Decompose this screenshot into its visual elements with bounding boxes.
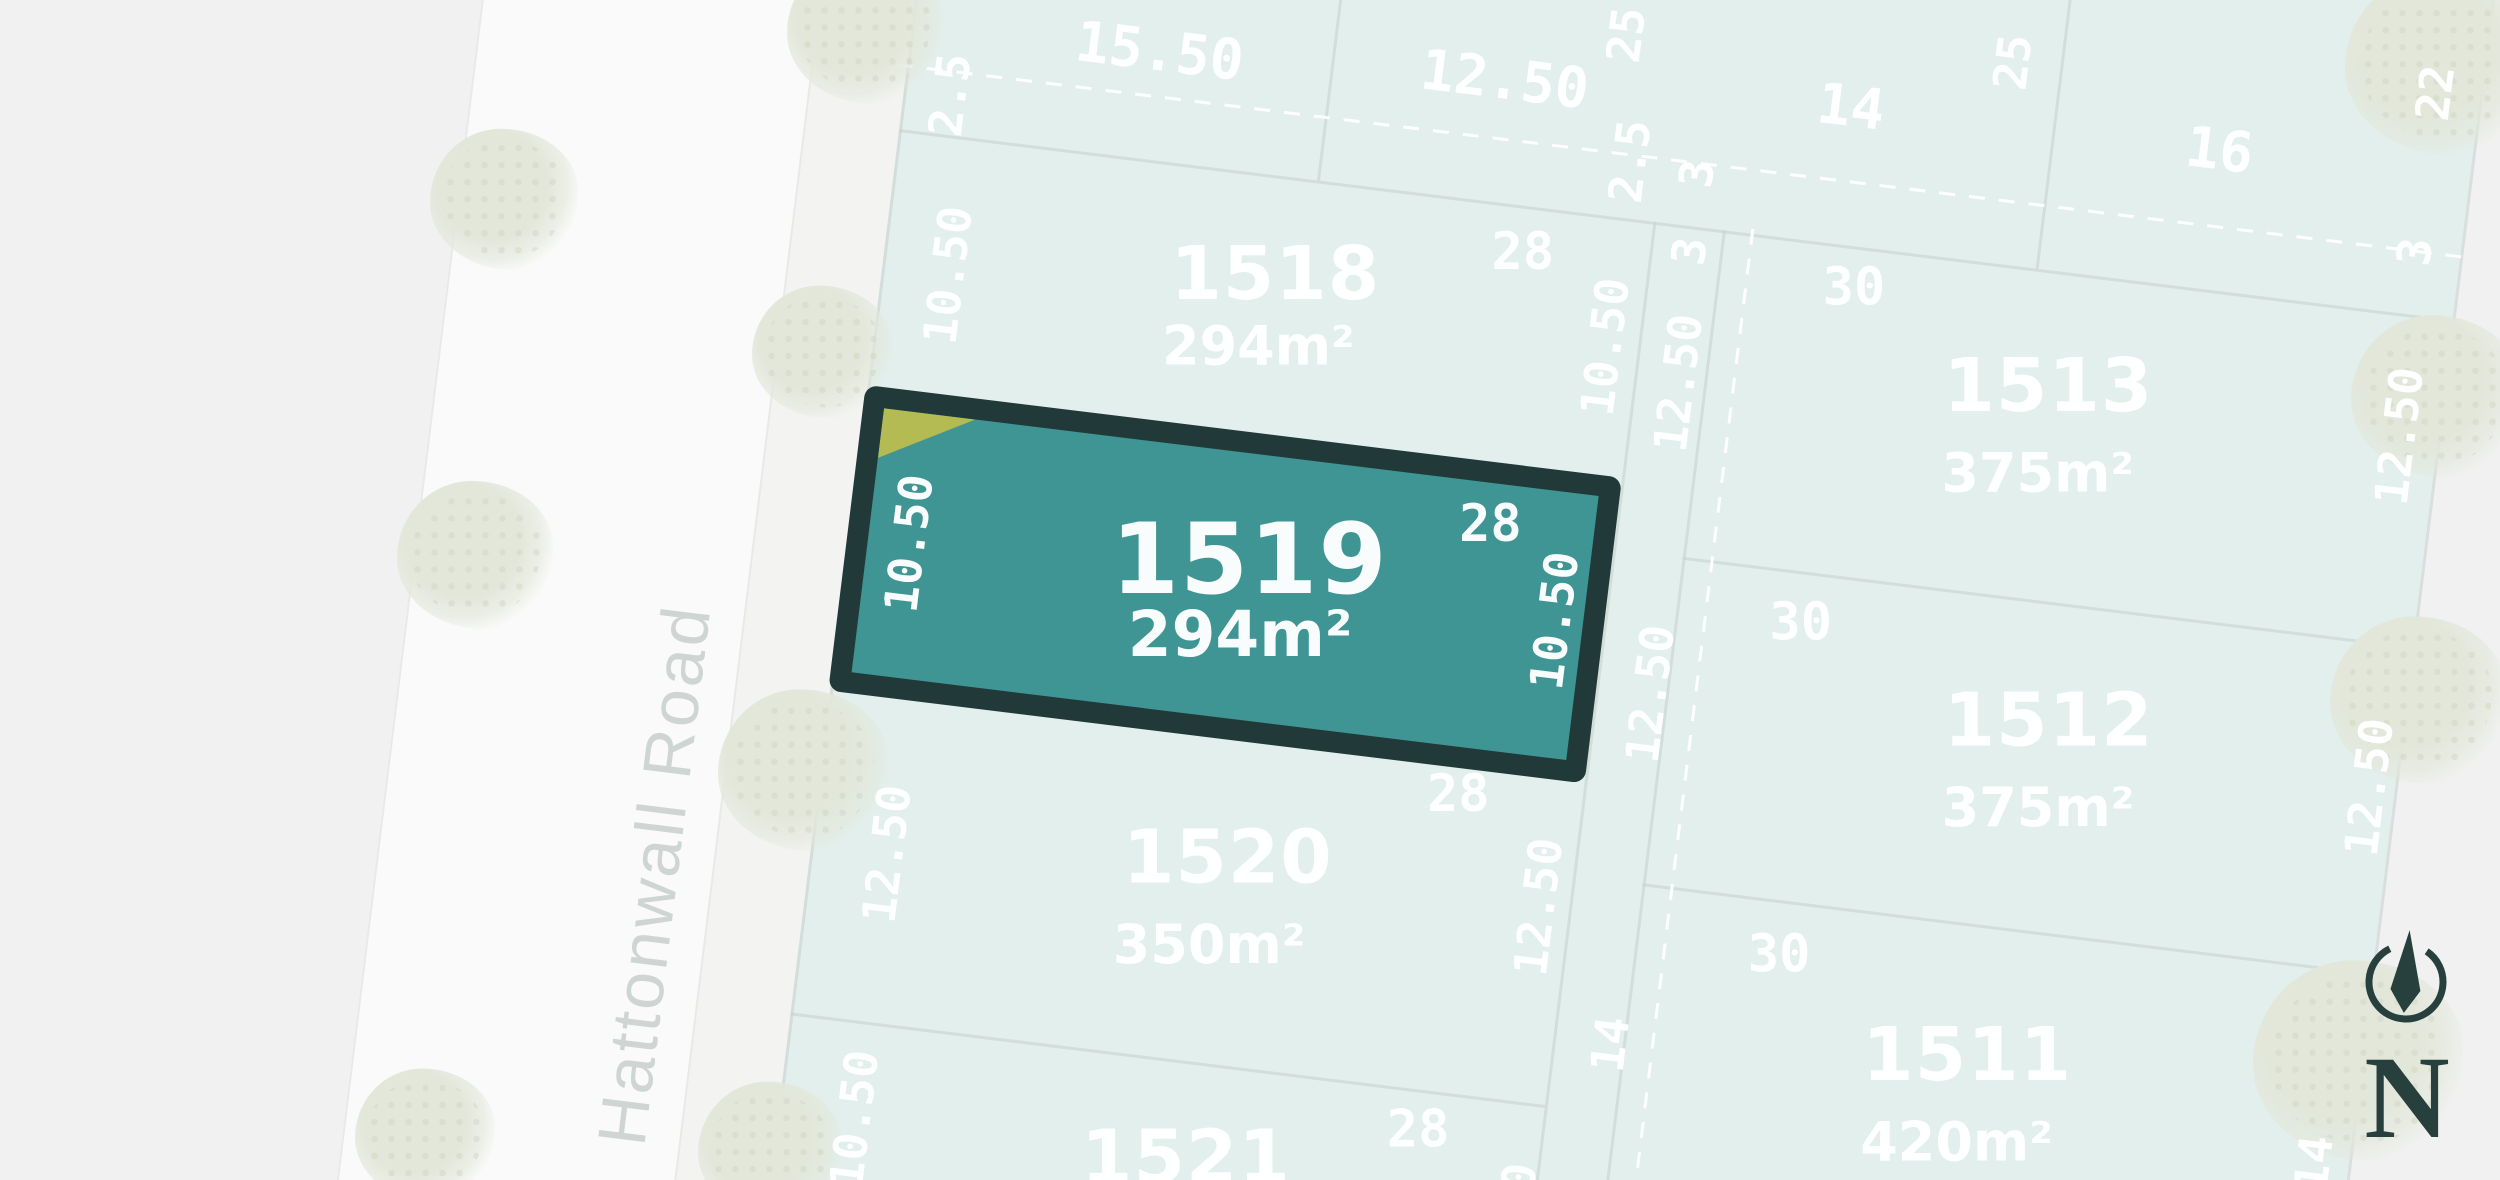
compass-ring-icon	[2367, 928, 2447, 1022]
corner-marker-icon	[878, 408, 975, 469]
dimension-label: 28	[1492, 226, 1555, 278]
dimension-label: 3	[1665, 235, 1714, 268]
lot-number-label[interactable]: 1521	[1081, 1121, 1291, 1180]
compass-needle-icon	[2389, 929, 2425, 1014]
lot-area-label: 375m²	[1941, 446, 2134, 500]
dimension-label: 14	[1584, 1014, 1636, 1075]
dimension-label: 3	[1672, 157, 1721, 190]
tree-icon	[430, 129, 578, 270]
dimension-label: 25	[1600, 5, 1652, 66]
dimension-label: 25	[1986, 32, 2038, 93]
dimension-label: 2.5	[1602, 117, 1658, 205]
dimension-label: 14	[1814, 76, 1888, 140]
dimension-label: 30	[1748, 928, 1811, 980]
north-label: N	[2364, 1032, 2449, 1160]
dimension-label: 10.50	[1523, 549, 1586, 692]
dimension-label: 30	[1823, 262, 1886, 314]
lot-area-label: 375m²	[1942, 781, 2135, 835]
compass: N	[2320, 880, 2500, 1160]
lot-map: Hattonwall Road 15.5012.5014162.5252.533…	[0, 0, 2500, 1180]
dimension-label: 28	[1427, 768, 1490, 820]
dimension-label: 16	[2182, 119, 2256, 183]
dimension-label: 22	[2409, 63, 2461, 124]
lot-number-label[interactable]: 1518	[1170, 237, 1380, 311]
tree-icon	[397, 481, 553, 629]
dimension-label: 28	[1459, 498, 1522, 550]
dimension-label: 2.5	[922, 51, 978, 139]
lot-area-label: 294m²	[1162, 319, 1355, 373]
dimension-label: 28	[1387, 1104, 1450, 1156]
lot-number-label[interactable]: 1512	[1944, 684, 2154, 758]
lot-number-label: 1519	[1111, 511, 1388, 609]
lot-area-label: 350m²	[1113, 918, 1306, 972]
dimension-label: 30	[1769, 597, 1832, 649]
dimension-label: 10.50	[877, 472, 940, 615]
lot-number-label[interactable]: 1511	[1862, 1018, 2072, 1092]
lot-number-label[interactable]: 1520	[1123, 821, 1333, 895]
lot-number-label[interactable]: 1513	[1943, 349, 2153, 423]
dimension-label: 3	[2390, 235, 2439, 268]
dimension-label: 10.50	[823, 1047, 886, 1180]
lot-area-label: 294m²	[1128, 603, 1353, 666]
lot-area-label: 420m²	[1860, 1115, 2053, 1169]
